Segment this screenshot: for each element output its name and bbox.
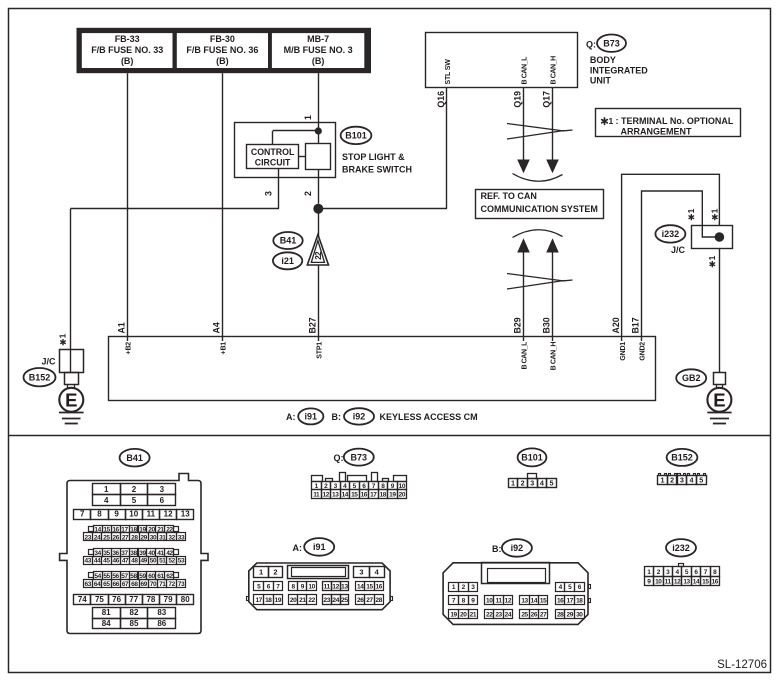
svg-text:16: 16 [712,579,719,586]
svg-text:6: 6 [694,569,698,576]
svg-text:i92: i92 [511,543,524,553]
svg-text:45: 45 [103,558,110,565]
svg-text:B CAN_L: B CAN_L [522,341,529,370]
svg-text:(B): (B) [312,56,325,66]
svg-text:19: 19 [450,611,457,618]
svg-text:10: 10 [486,597,493,604]
svg-text:27: 27 [122,534,129,541]
svg-text:17: 17 [255,597,262,604]
svg-text:4: 4 [375,568,380,577]
svg-text:29: 29 [140,534,147,541]
svg-text:15: 15 [702,579,709,586]
svg-text:B CAN_L: B CAN_L [522,56,529,85]
svg-text:27: 27 [540,611,547,618]
svg-text:20: 20 [290,597,297,604]
svg-text:26: 26 [357,597,364,604]
svg-text:17: 17 [567,597,574,604]
svg-text:13: 13 [332,492,339,499]
svg-text:28: 28 [557,611,564,618]
svg-text:5: 5 [132,496,137,505]
svg-text:B101: B101 [521,453,543,463]
svg-text:9: 9 [114,510,119,519]
svg-text:16: 16 [361,492,368,499]
svg-text:75: 75 [95,595,104,604]
svg-text:GB2: GB2 [682,373,701,383]
svg-text:22: 22 [486,611,493,618]
svg-text:40: 40 [148,550,155,557]
svg-text:6: 6 [160,496,165,505]
svg-text:26: 26 [531,611,538,618]
svg-text:13: 13 [521,597,528,604]
svg-text:42: 42 [166,550,173,557]
svg-text:B41: B41 [280,236,297,246]
svg-text:Q17: Q17 [542,91,552,108]
svg-text:12: 12 [505,597,512,604]
svg-text:15: 15 [366,583,373,590]
svg-text:77: 77 [129,595,138,604]
svg-text:B41: B41 [126,453,143,463]
svg-text:21: 21 [299,597,306,604]
svg-text:i91: i91 [313,542,326,552]
svg-text:5: 5 [257,583,261,590]
svg-text:18: 18 [380,492,387,499]
svg-text:23: 23 [323,597,330,604]
svg-text:17: 17 [370,492,377,499]
svg-text:E: E [713,390,725,411]
svg-text:20: 20 [460,611,467,618]
svg-text:21: 21 [470,611,477,618]
svg-text:35: 35 [103,550,110,557]
svg-text:B73: B73 [351,452,368,462]
svg-text:24: 24 [332,597,339,604]
svg-text:2: 2 [303,191,313,196]
svg-text:5: 5 [699,476,703,485]
svg-text:14: 14 [357,583,364,590]
svg-text:i21: i21 [281,256,294,266]
svg-text:66: 66 [113,581,120,588]
svg-text:23: 23 [85,534,92,541]
svg-text:FB-33: FB-33 [115,34,140,44]
svg-text:2: 2 [521,478,525,487]
svg-text:36: 36 [112,550,119,557]
svg-text:11: 11 [147,510,156,519]
svg-text:SL-12706: SL-12706 [717,659,767,671]
svg-text:13: 13 [181,510,190,519]
svg-text:23: 23 [495,611,502,618]
svg-text:(B): (B) [121,56,134,66]
svg-text:COMMUNICATION SYSTEM: COMMUNICATION SYSTEM [481,204,598,214]
svg-text:30: 30 [150,534,157,541]
svg-text:67: 67 [122,581,129,588]
svg-text:22: 22 [314,251,323,260]
svg-text:25: 25 [103,534,110,541]
svg-text:A:: A: [286,412,296,422]
svg-text:16: 16 [376,583,383,590]
svg-text:1: 1 [660,476,664,485]
svg-text:80: 80 [181,595,190,604]
svg-text:B17: B17 [631,317,641,333]
svg-text:22: 22 [308,597,315,604]
svg-text:GND1: GND1 [620,342,627,361]
svg-text:9: 9 [647,579,651,586]
svg-text:8: 8 [97,510,102,519]
svg-text:(B): (B) [216,56,229,66]
svg-text:16: 16 [557,597,564,604]
svg-text:10: 10 [308,583,315,590]
svg-text:32: 32 [168,534,175,541]
svg-text:STL SW: STL SW [445,59,452,85]
svg-text:2: 2 [670,476,674,485]
svg-text:3: 3 [680,476,684,485]
svg-text:38: 38 [130,550,137,557]
svg-text:11: 11 [313,492,320,499]
svg-text:49: 49 [140,558,147,565]
svg-text:28: 28 [376,597,383,604]
svg-text:14: 14 [531,597,538,604]
svg-text:1: 1 [711,208,720,213]
svg-text:14: 14 [693,579,700,586]
svg-text:18: 18 [576,597,583,604]
svg-text:Q19: Q19 [513,91,523,108]
svg-text:64: 64 [94,581,101,588]
svg-text:65: 65 [103,581,110,588]
svg-text:12: 12 [332,583,339,590]
svg-text:24: 24 [505,611,512,618]
svg-text:13: 13 [683,579,690,586]
svg-text:F/B FUSE NO. 36: F/B FUSE NO. 36 [186,45,258,55]
svg-text:83: 83 [157,608,166,617]
svg-text:i91: i91 [305,412,318,422]
svg-text:50: 50 [150,558,157,565]
svg-text:5: 5 [568,584,572,591]
svg-text:CONTROL: CONTROL [251,147,295,157]
svg-text:43: 43 [85,558,92,565]
svg-text:KEYLESS ACCESS CM: KEYLESS ACCESS CM [380,412,478,422]
svg-text:2: 2 [132,485,137,494]
svg-text:3: 3 [264,191,274,196]
svg-text:71: 71 [159,581,166,588]
svg-text:10: 10 [129,510,138,519]
svg-text:27: 27 [366,597,373,604]
svg-text:33: 33 [178,534,185,541]
svg-text:15: 15 [351,492,358,499]
svg-text:15: 15 [540,597,547,604]
svg-text:63: 63 [85,581,92,588]
svg-text:B29: B29 [513,317,523,333]
svg-text:GND2: GND2 [640,342,647,361]
svg-text:70: 70 [150,581,157,588]
svg-text:A20: A20 [611,317,621,333]
svg-text:i232: i232 [672,543,690,553]
svg-text:+B2: +B2 [125,342,132,355]
svg-text:1: 1 [104,485,109,494]
svg-text:A4: A4 [212,322,222,333]
svg-text:A:: A: [293,543,303,553]
svg-text:78: 78 [146,595,155,604]
svg-text:11: 11 [324,583,331,590]
svg-text:i92: i92 [353,412,366,422]
svg-text:CIRCUIT: CIRCUIT [255,157,291,167]
svg-text:1: 1 [511,478,515,487]
svg-text:3: 3 [160,485,165,494]
svg-text:39: 39 [139,550,146,557]
svg-text:19: 19 [389,492,396,499]
svg-text:76: 76 [112,595,121,604]
svg-text:4: 4 [104,496,109,505]
svg-text:B27: B27 [308,317,318,333]
svg-text:i232: i232 [662,229,680,239]
svg-text:29: 29 [567,611,574,618]
svg-text:2: 2 [657,569,661,576]
svg-text:ARRANGEMENT: ARRANGEMENT [621,127,693,137]
svg-text:Q:: Q: [586,39,596,49]
svg-text:68: 68 [131,581,138,588]
svg-text:11: 11 [496,597,503,604]
svg-text:F/B FUSE NO. 33: F/B FUSE NO. 33 [91,45,163,55]
svg-text:1: 1 [303,115,313,120]
svg-text:B152: B152 [29,372,51,382]
svg-text:47: 47 [122,558,129,565]
svg-text:+B1: +B1 [221,342,228,355]
svg-text:9: 9 [301,583,305,590]
svg-text:28: 28 [131,534,138,541]
svg-text:7: 7 [276,583,280,590]
svg-text:3: 3 [359,568,363,577]
svg-text:3: 3 [530,478,534,487]
svg-text:52: 52 [168,558,175,565]
svg-text:STP1: STP1 [317,342,324,359]
svg-text:11: 11 [665,579,672,586]
svg-text:7: 7 [704,569,708,576]
svg-text:53: 53 [178,558,185,565]
svg-text:: TERMINAL No. OPTIONAL: : TERMINAL No. OPTIONAL [616,116,734,126]
svg-text:48: 48 [131,558,138,565]
svg-text:2: 2 [462,584,466,591]
svg-text:19: 19 [275,597,282,604]
svg-text:13: 13 [341,583,348,590]
svg-text:44: 44 [94,558,101,565]
svg-text:37: 37 [121,550,128,557]
svg-text:MB-7: MB-7 [307,34,329,44]
svg-text:34: 34 [94,550,101,557]
svg-text:24: 24 [94,534,101,541]
svg-text:2: 2 [273,568,277,577]
svg-text:3: 3 [471,584,475,591]
svg-text:30: 30 [576,611,583,618]
svg-text:E: E [65,390,77,411]
svg-text:1: 1 [452,584,456,591]
svg-text:69: 69 [140,581,147,588]
svg-text:74: 74 [78,595,87,604]
svg-text:5: 5 [685,569,689,576]
svg-text:1: 1 [708,255,717,260]
svg-text:STOP LIGHT &: STOP LIGHT & [342,152,405,162]
svg-text:B:: B: [492,544,502,554]
svg-text:1: 1 [259,568,263,577]
svg-text:4: 4 [540,478,544,487]
svg-text:B152: B152 [671,453,693,463]
svg-text:9: 9 [471,597,475,604]
svg-text:20: 20 [399,492,406,499]
svg-text:82: 82 [130,608,139,617]
svg-text:BODY: BODY [590,55,616,65]
svg-text:25: 25 [341,597,348,604]
svg-text:1: 1 [609,116,614,126]
svg-text:FB-30: FB-30 [210,34,235,44]
svg-text:18: 18 [265,597,272,604]
svg-text:B30: B30 [542,317,552,333]
svg-text:12: 12 [323,492,330,499]
svg-text:14: 14 [342,492,349,499]
svg-text:UNIT: UNIT [590,76,611,86]
svg-text:Q:: Q: [334,453,344,463]
svg-text:BRAKE SWITCH: BRAKE SWITCH [342,165,412,175]
svg-text:84: 84 [102,619,111,628]
svg-text:4: 4 [559,584,563,591]
svg-text:12: 12 [674,579,681,586]
svg-text:12: 12 [164,510,173,519]
svg-text:51: 51 [159,558,166,565]
svg-text:A1: A1 [116,322,126,333]
svg-text:26: 26 [113,534,120,541]
svg-text:86: 86 [157,619,166,628]
svg-text:8: 8 [292,583,296,590]
svg-text:41: 41 [157,550,164,557]
svg-text:8: 8 [713,569,717,576]
svg-text:72: 72 [168,581,175,588]
svg-text:3: 3 [666,569,670,576]
svg-text:B:: B: [332,412,342,422]
svg-text:5: 5 [549,478,553,487]
svg-text:25: 25 [521,611,528,618]
svg-text:1: 1 [687,208,696,213]
svg-text:10: 10 [655,579,662,586]
svg-text:B73: B73 [603,38,620,48]
svg-text:1: 1 [59,333,68,338]
svg-text:7: 7 [80,510,85,519]
svg-text:73: 73 [178,581,185,588]
svg-text:8: 8 [462,597,466,604]
svg-text:4: 4 [676,569,680,576]
svg-text:6: 6 [267,583,271,590]
svg-text:6: 6 [578,584,582,591]
svg-text:INTEGRATED: INTEGRATED [590,65,648,75]
svg-text:81: 81 [102,608,111,617]
svg-text:85: 85 [130,619,139,628]
svg-text:J/C: J/C [671,245,686,255]
svg-text:REF. TO CAN: REF. TO CAN [481,191,537,201]
svg-text:1: 1 [647,569,651,576]
svg-text:4: 4 [690,476,694,485]
svg-text:B CAN_H: B CAN_H [551,342,558,371]
svg-text:J/C: J/C [41,357,56,367]
svg-text:B CAN_H: B CAN_H [551,56,558,85]
svg-text:B101: B101 [345,131,367,141]
svg-text:46: 46 [113,558,120,565]
svg-text:Q16: Q16 [436,91,446,108]
svg-text:7: 7 [452,597,456,604]
svg-text:79: 79 [164,595,173,604]
svg-text:M/B FUSE NO. 3: M/B FUSE NO. 3 [284,45,353,55]
svg-text:31: 31 [159,534,166,541]
